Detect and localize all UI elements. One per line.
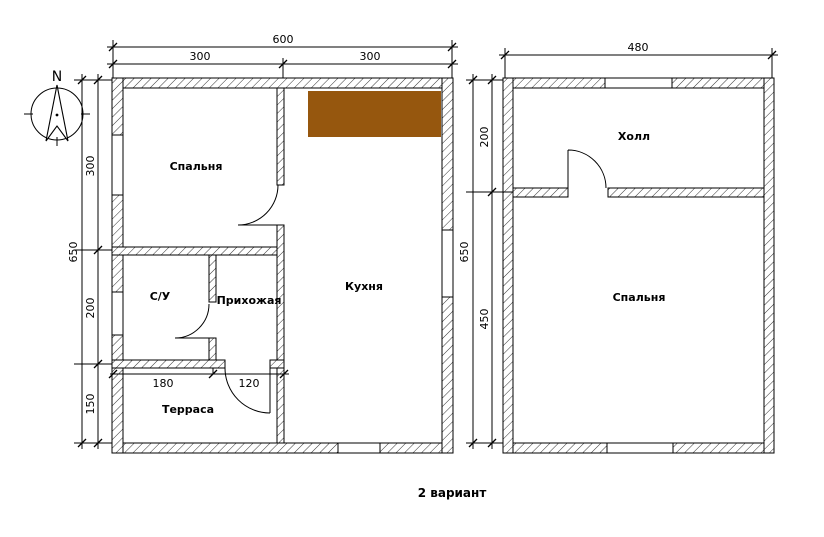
dim-inner-seg-2: 120	[239, 377, 260, 390]
dim-inner-seg-1: 180	[153, 377, 174, 390]
door-terrace	[225, 368, 270, 413]
opening-kitchen-bottom	[338, 443, 380, 453]
room-label-bedroom-right: Спальня	[613, 291, 666, 304]
room-label-hall: Холл	[618, 130, 650, 143]
compass: N	[24, 69, 90, 146]
wall-top-right-segment	[672, 78, 774, 88]
wall-hall-bedroom-right	[608, 188, 764, 197]
room-label-bedroom-left: Спальня	[170, 160, 223, 173]
dim-top-total: 480	[628, 41, 649, 54]
door-bedroom	[238, 185, 278, 225]
plan-right-room-labels: Холл Спальня	[613, 130, 666, 304]
room-label-bathroom: С/У	[150, 290, 171, 303]
dim-top-seg-1: 300	[190, 50, 211, 63]
window-bathroom-left	[112, 292, 123, 335]
window-hall-top	[605, 78, 672, 88]
wall-terrace-top-stub	[270, 360, 284, 368]
wall-bedroom-kitchen-upper	[277, 88, 284, 185]
wall-top-left-segment	[503, 78, 605, 88]
wall-bottom-left-segment	[112, 443, 338, 453]
floor-plan-sheet: N	[0, 0, 824, 537]
window-kitchen-right	[442, 230, 453, 297]
plan-left: 600 300 300 650 300 200 150 180 120 Спал…	[67, 33, 458, 453]
room-label-hallway: Прихожая	[217, 294, 282, 307]
wall-left-segment-3	[112, 335, 123, 453]
wall-bathroom-hallway-upper	[209, 255, 216, 302]
wall-bottom-right-segment	[673, 443, 774, 453]
window-bedroom-left	[112, 135, 123, 195]
dim-side-seg-2: 200	[84, 298, 97, 319]
sheet-caption: 2 вариант	[418, 486, 487, 500]
dim-top-seg-2: 300	[360, 50, 381, 63]
dim-side-seg-3: 150	[84, 394, 97, 415]
wall-left-segment-1	[112, 78, 123, 135]
dimension-lines	[473, 55, 778, 449]
room-label-kitchen: Кухня	[345, 280, 383, 293]
compass-center-dot	[56, 114, 59, 117]
dimension-ticks	[469, 51, 776, 447]
north-arrow-icon	[46, 85, 68, 141]
plan-right-interior-walls	[513, 188, 764, 197]
plan-left-room-labels: Спальня С/У Прихожая Кухня Терраса	[150, 160, 383, 416]
dim-top-total: 600	[273, 33, 294, 46]
wall-top	[112, 78, 453, 88]
door-hall	[568, 150, 606, 188]
kitchen-counter	[308, 91, 441, 137]
plan-right: 480 650 200 450 Холл Спальня	[458, 41, 778, 453]
window-bedroom-bottom	[607, 443, 673, 453]
wall-bedroom-bottom	[112, 247, 284, 255]
north-label: N	[52, 69, 62, 85]
plan-right-doors	[568, 150, 606, 188]
wall-bathroom-hallway-lower	[209, 338, 216, 360]
dim-side-total: 650	[458, 242, 471, 263]
wall-bottom-left-segment	[503, 443, 607, 453]
dim-side-seg-1: 300	[84, 156, 97, 177]
dim-side-total: 650	[67, 242, 80, 263]
wall-terrace-top-left	[112, 360, 225, 368]
dim-side-seg-1: 200	[478, 127, 491, 148]
wall-bedroom-kitchen-lower	[277, 225, 284, 443]
room-label-terrace: Терраса	[162, 403, 214, 416]
wall-left	[503, 78, 513, 453]
dim-side-seg-2: 450	[478, 309, 491, 330]
wall-right-segment-1	[442, 78, 453, 230]
door-bathroom	[175, 304, 209, 338]
wall-hall-bedroom-left	[513, 188, 568, 197]
wall-right	[764, 78, 774, 453]
floor-plan-drawing: N	[0, 0, 824, 537]
wall-left-segment-2	[112, 195, 123, 292]
wall-right-segment-2	[442, 297, 453, 453]
